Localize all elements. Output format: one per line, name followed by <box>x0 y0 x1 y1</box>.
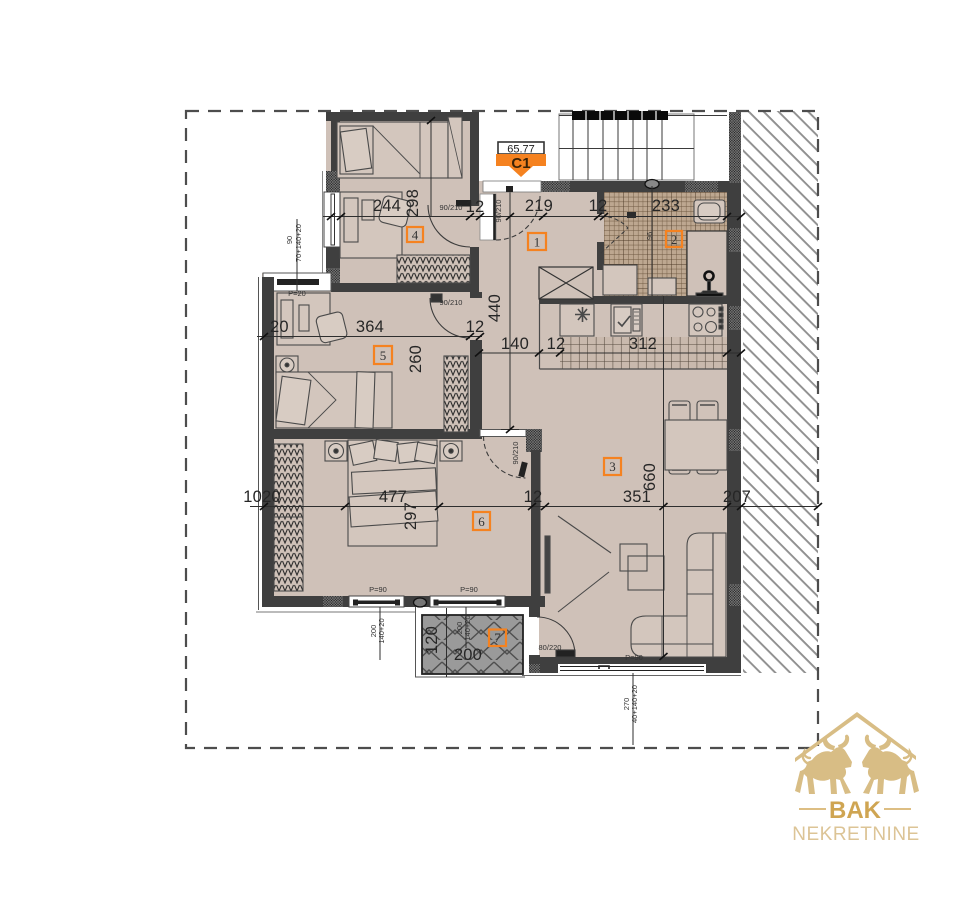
svg-text:233: 233 <box>652 197 680 215</box>
svg-text:1: 1 <box>534 235 541 250</box>
svg-text:140+20: 140+20 <box>463 615 472 640</box>
svg-text:96: 96 <box>645 232 654 240</box>
svg-text:298: 298 <box>404 189 422 217</box>
svg-text:440: 440 <box>486 294 504 322</box>
svg-text:BAK: BAK <box>829 797 882 824</box>
svg-text:12: 12 <box>466 198 485 216</box>
svg-text:120: 120 <box>423 626 441 654</box>
svg-text:40+140+20: 40+140+20 <box>630 685 639 723</box>
svg-text:207: 207 <box>723 488 751 506</box>
svg-text:297: 297 <box>402 502 420 530</box>
svg-text:P=90: P=90 <box>625 653 643 662</box>
svg-text:90: 90 <box>285 236 294 244</box>
svg-text:90/210: 90/210 <box>494 200 503 223</box>
svg-text:P=90: P=90 <box>460 585 478 594</box>
svg-text:80/220: 80/220 <box>539 643 562 652</box>
svg-text:244: 244 <box>373 197 401 215</box>
svg-text:5: 5 <box>380 348 387 363</box>
svg-text:140: 140 <box>501 335 529 353</box>
svg-text:12: 12 <box>589 197 608 215</box>
svg-text:200: 200 <box>454 646 482 664</box>
svg-text:4: 4 <box>412 228 419 243</box>
svg-text:90/210: 90/210 <box>440 203 463 212</box>
svg-text:70+140+20: 70+140+20 <box>294 224 303 262</box>
svg-text:2: 2 <box>671 232 678 247</box>
svg-text:6: 6 <box>478 514 485 529</box>
svg-text:660: 660 <box>641 463 659 491</box>
svg-text:C1: C1 <box>511 155 530 172</box>
svg-text:140+20: 140+20 <box>377 618 386 643</box>
svg-text:20: 20 <box>270 318 289 336</box>
svg-text:P=20: P=20 <box>288 289 306 298</box>
svg-text:12: 12 <box>466 318 485 336</box>
svg-text:219: 219 <box>525 197 553 215</box>
svg-text:1020: 1020 <box>243 488 281 506</box>
svg-text:312: 312 <box>629 335 657 353</box>
svg-text:65.77: 65.77 <box>507 144 535 156</box>
svg-text:12: 12 <box>524 488 543 506</box>
svg-text:NEKRETNINE: NEKRETNINE <box>792 824 919 845</box>
svg-text:260: 260 <box>407 345 425 373</box>
svg-text:3: 3 <box>609 459 616 474</box>
svg-text:7: 7 <box>494 630 501 645</box>
svg-text:364: 364 <box>356 318 384 336</box>
svg-text:P=90: P=90 <box>369 585 387 594</box>
svg-text:12: 12 <box>547 335 566 353</box>
svg-text:90/210: 90/210 <box>440 298 463 307</box>
svg-text:90/210: 90/210 <box>511 442 520 465</box>
